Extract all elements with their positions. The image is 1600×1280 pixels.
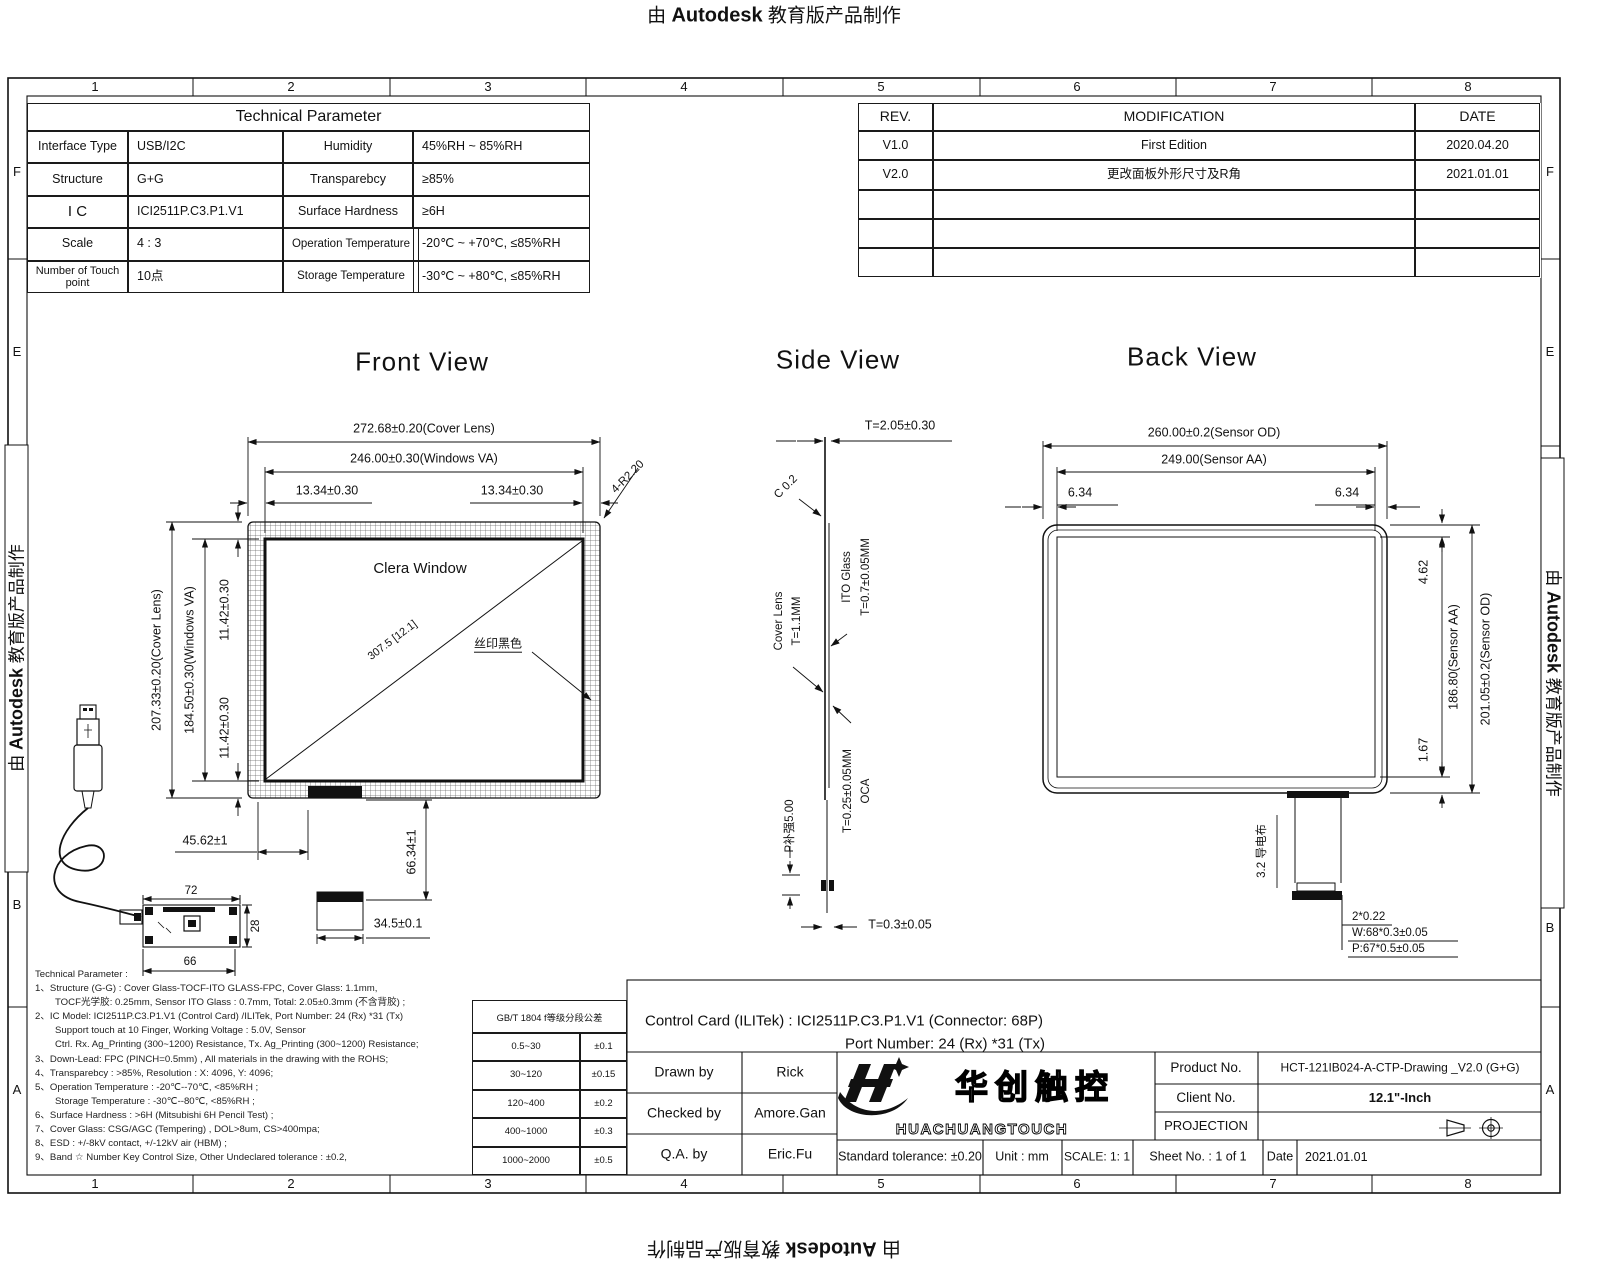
dim-pcb-height: 28 xyxy=(250,920,262,933)
note-line: 9、Band ☆ Number Key Control Size, Other … xyxy=(35,1151,515,1165)
drawing-sheet: 由 Autodesk 教育版产品制作 由 Autodesk 教育版产品制作 由 … xyxy=(0,0,1600,1280)
front-view-title: Front View xyxy=(355,348,489,375)
cell: Storage Temperature xyxy=(283,261,419,293)
qa-by-label: Q.A. by xyxy=(661,1147,708,1162)
checked-by-label: Checked by xyxy=(647,1106,721,1121)
zone-col-5: 5 xyxy=(877,80,884,94)
dim-back-margin-bottom: 1.67 xyxy=(1417,738,1430,762)
cell: Interface Type xyxy=(27,131,128,163)
zone-col-2b: 2 xyxy=(287,1177,294,1191)
oca-thickness: T=0.25±0.05MM xyxy=(842,749,854,833)
dim-back-margin-right: 6.34 xyxy=(1335,486,1359,499)
side-view-title: Side View xyxy=(776,346,900,373)
unit-label: Unit : mm xyxy=(995,1150,1048,1163)
banner-prefix: 由 xyxy=(882,1238,901,1259)
dim-margin-bottom: 11.42±0.30 xyxy=(218,697,231,759)
cell: V1.0 xyxy=(858,131,933,160)
zone-col-1b: 1 xyxy=(91,1177,98,1191)
cell: V2.0 xyxy=(858,160,933,190)
date-value: 2021.01.01 xyxy=(1305,1150,1368,1164)
projection-symbol xyxy=(1439,1117,1503,1139)
side-view-dimensions xyxy=(776,441,952,927)
banner-prefix: 由 xyxy=(1543,569,1562,586)
client-no-label: Client No. xyxy=(1176,1091,1235,1105)
zone-row-ar: A xyxy=(1546,1083,1555,1097)
zone-col-6: 6 xyxy=(1073,80,1080,94)
cell: 2020.04.20 xyxy=(1415,131,1540,160)
banner-suffix: 教育版产品制作 xyxy=(647,1238,780,1259)
product-no-value: HCT-121IB024-A-CTP-Drawing _V2.0 (G+G) xyxy=(1280,1062,1519,1075)
ito-glass-thickness: T=0.7±0.05MM xyxy=(860,538,872,616)
dim-cover-height: 207.33±0.20(Cover Lens) xyxy=(150,589,163,731)
cell: Surface Hardness xyxy=(283,196,413,228)
cell: I C xyxy=(27,196,128,228)
cell: 10点 xyxy=(128,261,283,293)
clear-window-label: Clera Window xyxy=(373,561,466,577)
zone-row-er: E xyxy=(1546,345,1555,359)
autodesk-banner-left: 由 Autodesk 教育版产品制作 xyxy=(8,544,27,771)
cell: ±0.15 xyxy=(580,1061,627,1089)
back-view-dimensions xyxy=(1005,441,1480,957)
empty-cell xyxy=(933,190,1415,219)
cell: ≥85% xyxy=(413,163,590,195)
note-line: 7、Cover Glass: CSG/AGC (Tempering) , DOL… xyxy=(35,1123,515,1137)
autodesk-banner-top: 由 Autodesk 教育版产品制作 xyxy=(647,6,901,27)
empty-cell xyxy=(1415,190,1540,219)
note-line: 5、Operation Temperature : -20℃--70℃, <85… xyxy=(35,1081,515,1095)
sheet-number: Sheet No. : 1 of 1 xyxy=(1149,1150,1246,1163)
ito-glass-label: ITO Glass xyxy=(841,551,853,603)
tolerance-table: GB/T 1804 f等级分段公差 0.5~30 ±0.1 30~120 ±0.… xyxy=(472,1000,627,1175)
banner-prefix: 由 xyxy=(8,755,27,772)
modification-header: MODIFICATION xyxy=(933,103,1415,131)
zone-row-br: B xyxy=(1546,921,1555,935)
dim-sensor-od-height: 201.05±0.2(Sensor OD) xyxy=(1479,593,1492,726)
dim-tail-1: 2*0.22 xyxy=(1352,911,1385,923)
drawn-by-value: Rick xyxy=(776,1065,803,1080)
cell: 400~1000 xyxy=(472,1118,580,1146)
note-line: Technical Parameter : xyxy=(35,968,515,982)
empty-cell xyxy=(858,248,933,277)
dim-cover-width: 272.68±0.20(Cover Lens) xyxy=(353,422,495,435)
back-view-drawing xyxy=(1043,525,1387,950)
dim-tail-width: W:68*0.3±0.05 xyxy=(1352,927,1428,939)
scale-label: SCALE: 1: 1 xyxy=(1064,1151,1130,1164)
zone-col-5b: 5 xyxy=(877,1177,884,1191)
banner-brand: Autodesk xyxy=(1543,591,1563,673)
zone-col-8: 8 xyxy=(1464,80,1471,94)
cell: 120~400 xyxy=(472,1090,580,1118)
usb-cable xyxy=(54,705,142,924)
dim-sensor-od-width: 260.00±0.2(Sensor OD) xyxy=(1148,426,1281,439)
cell: ±0.1 xyxy=(580,1033,627,1061)
projection-label: PROJECTION xyxy=(1164,1119,1248,1133)
zone-row-a: A xyxy=(13,1083,22,1097)
cover-lens-label: Cover Lens xyxy=(773,592,785,651)
fpc-connector-detail xyxy=(317,892,363,930)
dim-va-width: 246.00±0.30(Windows VA) xyxy=(350,452,498,465)
cell: -20℃ ~ +70℃, ≤85%RH xyxy=(413,228,590,260)
autodesk-banner-right: 由 Autodesk 教育版产品制作 xyxy=(1544,569,1563,796)
cell: ±0.5 xyxy=(580,1147,627,1175)
qa-by-value: Eric.Fu xyxy=(768,1147,812,1162)
stiffener-label: P补强5.00 xyxy=(784,799,796,852)
zone-row-e: E xyxy=(13,345,22,359)
cell: ≥6H xyxy=(413,196,590,228)
oca-label: OCA xyxy=(860,779,872,804)
zone-col-7b: 7 xyxy=(1269,1177,1276,1191)
front-view-dimensions xyxy=(166,437,638,944)
dim-pcb-width: 72 xyxy=(185,885,198,897)
note-line: 3、Down-Lead: FPC (PINCH=0.5mm) , All mat… xyxy=(35,1053,515,1067)
empty-cell xyxy=(858,219,933,248)
tolerance-header: GB/T 1804 f等级分段公差 xyxy=(472,1000,627,1033)
rev-header: REV. xyxy=(858,103,933,131)
cell: 0.5~30 xyxy=(472,1033,580,1061)
date-label: Date xyxy=(1267,1150,1293,1163)
zone-row-fr: F xyxy=(1546,165,1554,179)
zone-col-8b: 8 xyxy=(1464,1177,1471,1191)
cell: Operation Temperature xyxy=(283,228,419,260)
zone-row-f: F xyxy=(13,165,21,179)
company-logo-icon xyxy=(838,1057,909,1115)
cell: 45%RH ~ 85%RH xyxy=(413,131,590,163)
empty-cell xyxy=(933,219,1415,248)
side-view-drawing xyxy=(821,437,834,913)
zone-col-1: 1 xyxy=(91,80,98,94)
cell: First Edition xyxy=(933,131,1415,160)
cell: Scale xyxy=(27,228,128,260)
technical-parameter-table: Technical Parameter Interface Type USB/I… xyxy=(27,103,590,293)
banner-suffix: 教育版产品制作 xyxy=(768,6,901,27)
company-name-cn: 华创触控 xyxy=(955,1071,1115,1106)
dim-fpc-length: 66.34±1 xyxy=(405,829,418,874)
zone-col-7: 7 xyxy=(1269,80,1276,94)
control-card-line2: Port Number: 24 (Rx) *31 (Tx) xyxy=(845,1036,1045,1053)
cell: USB/I2C xyxy=(128,131,283,163)
banner-prefix: 由 xyxy=(647,6,666,27)
cover-lens-thickness: T=1.1MM xyxy=(791,597,803,646)
note-line: Storage Temperature : -30℃--80℃, <85%RH … xyxy=(35,1095,515,1109)
note-line: 6、Surface Hardness : >6H (Mitsubishi 6H … xyxy=(35,1109,515,1123)
note-line: TOCF光学胶: 0.25mm, Sensor ITO Glass : 0.7m… xyxy=(35,996,515,1010)
cell: Structure xyxy=(27,163,128,195)
dim-margin-top: 11.42±0.30 xyxy=(218,579,231,641)
controller-pcb xyxy=(143,895,252,976)
table-title: Technical Parameter xyxy=(27,103,590,131)
standard-tolerance: Standard tolerance: ±0.20 xyxy=(838,1150,982,1163)
cell: ±0.3 xyxy=(580,1118,627,1146)
cell: Number of Touch point xyxy=(27,261,128,293)
banner-suffix: 教育版产品制作 xyxy=(1543,678,1562,797)
cell: Transparebcy xyxy=(283,163,413,195)
technical-notes: Technical Parameter : 1、Structure (G-G) … xyxy=(35,968,515,1165)
cell: 30~120 xyxy=(472,1061,580,1089)
revision-table: REV. MODIFICATION DATE V1.0 First Editio… xyxy=(858,103,1541,278)
banner-suffix: 教育版产品制作 xyxy=(8,544,27,663)
cell: 1000~2000 xyxy=(472,1147,580,1175)
note-line: 8、ESD : +/-8kV contact, +/-12kV air (HBM… xyxy=(35,1137,515,1151)
banner-brand: Autodesk xyxy=(7,668,27,750)
drawn-by-label: Drawn by xyxy=(654,1065,713,1080)
client-no-value: 12.1"-Inch xyxy=(1369,1091,1432,1105)
zone-col-2: 2 xyxy=(287,80,294,94)
empty-cell xyxy=(858,190,933,219)
zone-col-4: 4 xyxy=(680,80,687,94)
silk-print-label: 丝印黑色 xyxy=(474,638,522,653)
dim-sensor-aa-width: 249.00(Sensor AA) xyxy=(1161,453,1267,466)
cell: G+G xyxy=(128,163,283,195)
dim-fpc-width: 34.5±0.1 xyxy=(374,917,423,930)
dim-back-margin-top: 4.62 xyxy=(1417,560,1430,584)
date-header: DATE xyxy=(1415,103,1540,131)
dim-sensor-aa-height: 186.80(Sensor AA) xyxy=(1447,604,1460,710)
zone-col-6b: 6 xyxy=(1073,1177,1080,1191)
cell: ±0.2 xyxy=(580,1090,627,1118)
cell: 4 : 3 xyxy=(128,228,283,260)
back-view-title: Back View xyxy=(1127,343,1257,370)
note-line: 2、IC Model: ICI2511P.C3.P1.V1 (Control C… xyxy=(35,1010,515,1024)
dim-pcb-width2: 66 xyxy=(184,956,197,968)
banner-brand: Autodesk xyxy=(671,5,762,27)
cell: 2021.01.01 xyxy=(1415,160,1540,190)
conductive-cloth-label: 3.2 导电布 xyxy=(1256,824,1268,878)
note-line: 4、Transparebcy : >85%, Resolution : X: 4… xyxy=(35,1067,515,1081)
dim-fpc-offset: 45.62±1 xyxy=(182,834,227,847)
dim-total-thickness: T=2.05±0.30 xyxy=(865,419,935,432)
note-line: Ctrl. Rx. Ag_Printing (300~1200) Resista… xyxy=(35,1038,515,1052)
note-line: 1、Structure (G-G) : Cover Glass-TOCF-ITO… xyxy=(35,982,515,996)
cell: -30℃ ~ +80℃, ≤85%RH xyxy=(413,261,590,293)
autodesk-banner-bottom: 由 Autodesk 教育版产品制作 xyxy=(647,1238,901,1259)
control-card-line1: Control Card (ILITek) : ICI2511P.C3.P1.V… xyxy=(645,1013,1043,1030)
dim-tail-pitch: P:67*0.5±0.05 xyxy=(1352,943,1425,955)
cell: ICI2511P.C3.P1.V1 xyxy=(128,196,283,228)
company-name-en: HUACHUANGTOUCH xyxy=(896,1122,1068,1138)
zone-row-b: B xyxy=(13,898,22,912)
dim-margin-left: 13.34±0.30 xyxy=(296,484,358,497)
dim-back-margin-left: 6.34 xyxy=(1068,486,1092,499)
checked-by-value: Amore.Gan xyxy=(754,1106,826,1121)
cell: 更改面板外形尺寸及R角 xyxy=(933,160,1415,190)
empty-cell xyxy=(933,248,1415,277)
product-no-label: Product No. xyxy=(1170,1061,1241,1075)
dim-margin-right: 13.34±0.30 xyxy=(481,484,543,497)
cell: Humidity xyxy=(283,131,413,163)
dim-fpc-thickness: T=0.3±0.05 xyxy=(868,918,932,931)
zone-col-3b: 3 xyxy=(484,1177,491,1191)
dim-va-height: 184.50±0.30(Windows VA) xyxy=(183,586,196,734)
empty-cell xyxy=(1415,219,1540,248)
empty-cell xyxy=(1415,248,1540,277)
zone-col-3: 3 xyxy=(484,80,491,94)
zone-col-4b: 4 xyxy=(680,1177,687,1191)
note-line: Support touch at 10 Finger, Working Volt… xyxy=(35,1024,515,1038)
banner-brand: Autodesk xyxy=(785,1238,876,1260)
